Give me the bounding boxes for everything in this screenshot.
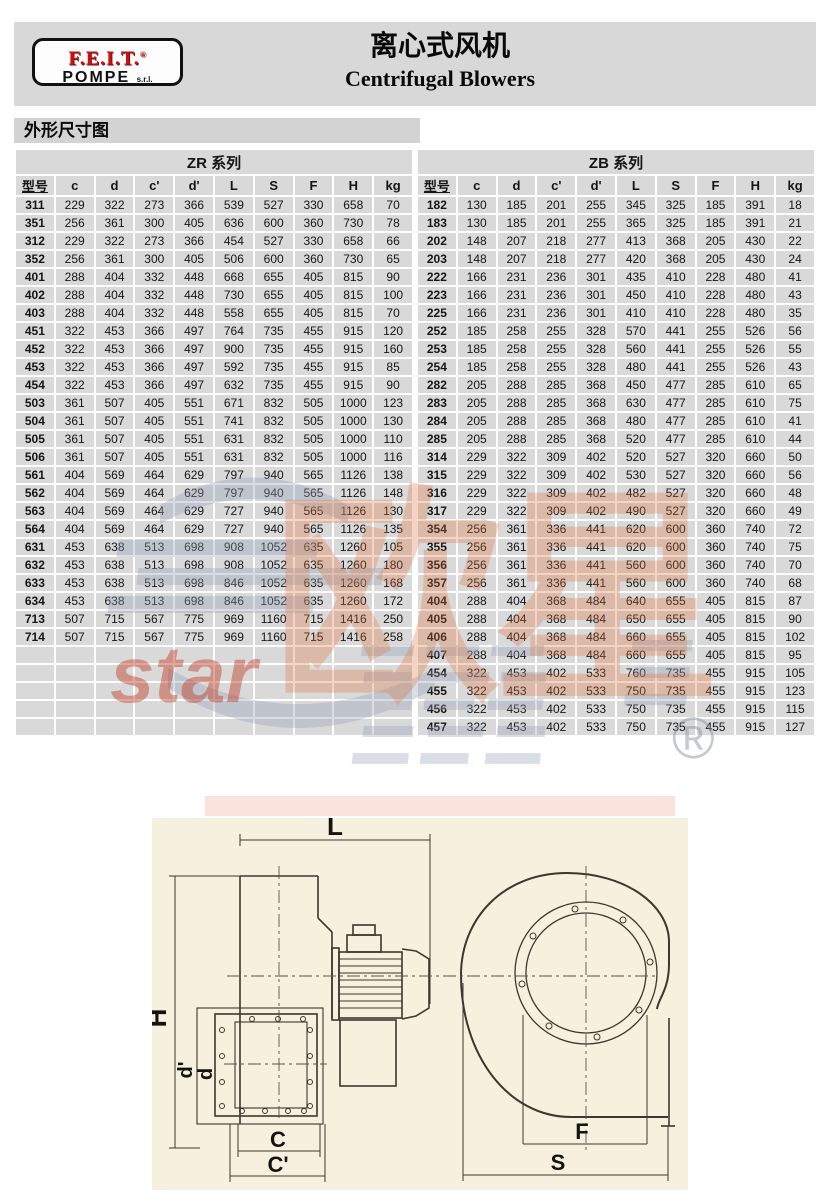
table-row: 5063615074055516318325051000116 <box>16 449 412 465</box>
value-cell: 1052 <box>255 557 293 573</box>
value-cell <box>374 683 412 699</box>
table-row: 31122932227336653952733065870 <box>16 197 412 213</box>
value-cell: 102 <box>776 629 814 645</box>
value-cell <box>96 683 134 699</box>
value-cell: 368 <box>577 377 615 393</box>
value-cell: 533 <box>577 665 615 681</box>
table-row: 35425636133644162060036074072 <box>418 521 814 537</box>
value-cell: 402 <box>577 503 615 519</box>
value-cell: 49 <box>776 503 814 519</box>
value-cell: 1260 <box>334 539 372 555</box>
model-cell: 283 <box>418 395 456 411</box>
model-cell: 506 <box>16 449 54 465</box>
value-cell: 527 <box>657 449 695 465</box>
column-header-d': d' <box>175 176 213 195</box>
value-cell: 480 <box>736 305 774 321</box>
value-cell: 815 <box>736 611 774 627</box>
value-cell: 404 <box>56 503 94 519</box>
value-cell <box>175 719 213 735</box>
value-cell <box>255 701 293 717</box>
value-cell: 655 <box>255 269 293 285</box>
value-cell: 273 <box>135 197 173 213</box>
value-cell: 660 <box>617 629 655 645</box>
logo-feit-word: F.E.I.T. <box>68 48 139 70</box>
value-cell: 632 <box>215 377 253 393</box>
value-cell: 600 <box>255 215 293 231</box>
value-cell: 256 <box>458 557 496 573</box>
model-cell: 284 <box>418 413 456 429</box>
value-cell: 402 <box>577 449 615 465</box>
value-cell: 405 <box>295 287 333 303</box>
value-cell: 533 <box>577 701 615 717</box>
value-cell: 638 <box>96 539 134 555</box>
value-cell: 567 <box>135 611 173 627</box>
model-cell: 405 <box>418 611 456 627</box>
value-cell: 322 <box>56 323 94 339</box>
value-cell: 448 <box>175 305 213 321</box>
value-cell: 368 <box>657 251 695 267</box>
value-cell: 285 <box>697 377 735 393</box>
value-cell: 638 <box>96 557 134 573</box>
value-cell: 846 <box>215 593 253 609</box>
value-cell: 325 <box>657 215 695 231</box>
value-cell: 655 <box>657 647 695 663</box>
model-cell: 285 <box>418 431 456 447</box>
value-cell: 250 <box>374 611 412 627</box>
column-header-kg: kg <box>776 176 814 195</box>
value-cell: 322 <box>498 485 536 501</box>
value-cell: 166 <box>458 305 496 321</box>
value-cell: 50 <box>776 449 814 465</box>
value-cell: 231 <box>498 269 536 285</box>
model-cell: 317 <box>418 503 456 519</box>
model-cell: 562 <box>16 485 54 501</box>
value-cell: 455 <box>295 341 333 357</box>
table-row: 40128840433244866865540581590 <box>16 269 412 285</box>
column-header-型号: 型号 <box>418 176 456 195</box>
value-cell: 915 <box>736 683 774 699</box>
value-cell: 345 <box>617 197 655 213</box>
value-cell: 655 <box>255 305 293 321</box>
value-cell: 915 <box>736 719 774 735</box>
value-cell: 497 <box>175 359 213 375</box>
value-cell: 185 <box>458 323 496 339</box>
value-cell: 229 <box>458 485 496 501</box>
value-cell: 715 <box>96 629 134 645</box>
table-row <box>16 701 412 717</box>
column-header-c: c <box>458 176 496 195</box>
value-cell: 258 <box>498 323 536 339</box>
model-cell: 357 <box>418 575 456 591</box>
value-cell: 56 <box>776 323 814 339</box>
value-cell: 740 <box>736 539 774 555</box>
value-cell <box>56 683 94 699</box>
value-cell: 75 <box>776 395 814 411</box>
value-cell: 205 <box>697 233 735 249</box>
value-cell: 1126 <box>334 503 372 519</box>
value-cell: 797 <box>215 467 253 483</box>
value-cell: 455 <box>697 665 735 681</box>
value-cell: 715 <box>295 611 333 627</box>
blower-side-view <box>197 876 429 1124</box>
value-cell: 1416 <box>334 611 372 627</box>
value-cell <box>96 647 134 663</box>
value-cell: 635 <box>295 575 333 591</box>
value-cell: 464 <box>135 467 173 483</box>
value-cell: 309 <box>537 449 575 465</box>
value-cell: 600 <box>255 251 293 267</box>
logo-pompe-word: POMPE <box>62 69 130 86</box>
value-cell: 288 <box>458 629 496 645</box>
column-header-L: L <box>215 176 253 195</box>
model-cell: 564 <box>16 521 54 537</box>
table-row: 455322453402533750735455915123 <box>418 683 814 699</box>
value-cell: 505 <box>295 395 333 411</box>
value-cell <box>96 701 134 717</box>
value-cell: 41 <box>776 413 814 429</box>
column-header-型号: 型号 <box>16 176 54 195</box>
value-cell: 255 <box>537 323 575 339</box>
value-cell <box>255 647 293 663</box>
value-cell: 655 <box>657 611 695 627</box>
model-cell: 252 <box>418 323 456 339</box>
value-cell: 288 <box>458 611 496 627</box>
value-cell: 527 <box>657 503 695 519</box>
value-cell <box>374 647 412 663</box>
table-row: 35625636133644156060036074070 <box>418 557 814 573</box>
value-cell: 368 <box>657 233 695 249</box>
value-cell: 320 <box>697 503 735 519</box>
model-cell: 282 <box>418 377 456 393</box>
column-header-F: F <box>697 176 735 195</box>
value-cell: 332 <box>135 305 173 321</box>
model-cell: 406 <box>418 629 456 645</box>
value-cell: 130 <box>374 413 412 429</box>
value-cell: 900 <box>215 341 253 357</box>
value-cell: 832 <box>255 413 293 429</box>
value-cell: 638 <box>96 593 134 609</box>
value-cell: 630 <box>617 395 655 411</box>
value-cell: 507 <box>96 431 134 447</box>
table-row: 28520528828536852047728561044 <box>418 431 814 447</box>
value-cell: 255 <box>537 359 575 375</box>
model-cell: 457 <box>418 719 456 735</box>
value-cell <box>255 665 293 681</box>
model-cell: 455 <box>418 683 456 699</box>
value-cell: 256 <box>458 521 496 537</box>
table-row: 40428840436848464065540581587 <box>418 593 814 609</box>
value-cell: 72 <box>776 521 814 537</box>
value-cell: 513 <box>135 575 173 591</box>
value-cell: 484 <box>577 611 615 627</box>
value-cell: 288 <box>458 593 496 609</box>
table-row: 31422932230940252052732066050 <box>418 449 814 465</box>
table-row: 45432245336649763273545591590 <box>16 377 412 393</box>
column-header-c': c' <box>537 176 575 195</box>
value-cell: 309 <box>537 467 575 483</box>
value-cell: 301 <box>577 287 615 303</box>
value-cell: 255 <box>697 359 735 375</box>
value-cell: 138 <box>374 467 412 483</box>
table-row <box>16 665 412 681</box>
value-cell: 309 <box>537 503 575 519</box>
value-cell: 477 <box>657 395 695 411</box>
value-cell: 70 <box>374 305 412 321</box>
value-cell: 640 <box>617 593 655 609</box>
value-cell <box>255 683 293 699</box>
value-cell: 533 <box>577 719 615 735</box>
value-cell: 127 <box>776 719 814 735</box>
value-cell: 322 <box>458 719 496 735</box>
value-cell: 288 <box>498 431 536 447</box>
value-cell: 600 <box>657 575 695 591</box>
model-cell: 401 <box>16 269 54 285</box>
value-cell: 273 <box>135 233 173 249</box>
value-cell: 405 <box>175 215 213 231</box>
value-cell: 760 <box>617 665 655 681</box>
value-cell: 464 <box>135 503 173 519</box>
model-cell: 407 <box>418 647 456 663</box>
value-cell: 336 <box>537 539 575 555</box>
table-row: 28320528828536863047728561075 <box>418 395 814 411</box>
label-H: H <box>152 1009 172 1028</box>
table-row: 35125636130040563660036073078 <box>16 215 412 231</box>
model-cell: 402 <box>16 287 54 303</box>
value-cell: 730 <box>215 287 253 303</box>
value-cell: 285 <box>537 431 575 447</box>
model-cell: 504 <box>16 413 54 429</box>
value-cell: 322 <box>56 377 94 393</box>
value-cell: 110 <box>374 431 412 447</box>
value-cell: 629 <box>175 467 213 483</box>
value-cell: 533 <box>577 683 615 699</box>
value-cell: 441 <box>577 557 615 573</box>
value-cell: 441 <box>577 539 615 555</box>
table-row: 71350771556777596911607151416250 <box>16 611 412 627</box>
value-cell: 477 <box>657 377 695 393</box>
value-cell: 288 <box>498 395 536 411</box>
value-cell: 513 <box>135 593 173 609</box>
model-cell: 451 <box>16 323 54 339</box>
value-cell: 229 <box>56 197 94 213</box>
value-cell: 551 <box>175 449 213 465</box>
motor-terminal-box <box>347 935 381 952</box>
table-row: 31622932230940248252732066048 <box>418 485 814 501</box>
value-cell: 464 <box>135 521 173 537</box>
value-cell: 915 <box>736 665 774 681</box>
label-d: d <box>195 1068 217 1080</box>
value-cell <box>334 647 372 663</box>
value-cell <box>295 701 333 717</box>
column-header-H: H <box>736 176 774 195</box>
value-cell: 205 <box>697 251 735 267</box>
table-row: 35525636133644162060036074075 <box>418 539 814 555</box>
value-cell: 740 <box>736 521 774 537</box>
value-cell: 368 <box>537 611 575 627</box>
value-cell: 620 <box>617 539 655 555</box>
value-cell: 526 <box>736 359 774 375</box>
inlet-flange-outer <box>197 1008 323 1124</box>
value-cell: 115 <box>776 701 814 717</box>
value-cell: 410 <box>657 305 695 321</box>
value-cell: 288 <box>56 269 94 285</box>
label-C-prime: C' <box>267 1152 288 1177</box>
value-cell: 65 <box>374 251 412 267</box>
table-row <box>16 683 412 699</box>
value-cell: 322 <box>96 197 134 213</box>
value-cell <box>175 665 213 681</box>
value-cell: 56 <box>776 467 814 483</box>
value-cell <box>215 683 253 699</box>
value-cell: 520 <box>617 431 655 447</box>
model-cell: 351 <box>16 215 54 231</box>
value-cell: 391 <box>736 197 774 213</box>
value-cell: 526 <box>736 323 774 339</box>
value-cell: 497 <box>175 341 213 357</box>
value-cell: 322 <box>96 233 134 249</box>
table-row: 35225636130040550660036073065 <box>16 251 412 267</box>
value-cell: 43 <box>776 287 814 303</box>
table-row: 454322453402533760735455915105 <box>418 665 814 681</box>
column-header-F: F <box>295 176 333 195</box>
label-C: C <box>270 1127 286 1152</box>
value-cell: 185 <box>458 359 496 375</box>
table-row <box>16 647 412 663</box>
table-row: 5033615074055516718325051000123 <box>16 395 412 411</box>
value-cell: 207 <box>498 251 536 267</box>
value-cell: 285 <box>697 431 735 447</box>
value-cell: 231 <box>498 305 536 321</box>
value-cell: 135 <box>374 521 412 537</box>
value-cell: 218 <box>537 251 575 267</box>
value-cell: 846 <box>215 575 253 591</box>
value-cell: 95 <box>776 647 814 663</box>
table-row: 31222932227336645452733065866 <box>16 233 412 249</box>
value-cell: 740 <box>736 557 774 573</box>
value-cell: 484 <box>577 629 615 645</box>
value-cell: 740 <box>736 575 774 591</box>
value-cell: 322 <box>458 683 496 699</box>
value-cell: 236 <box>537 287 575 303</box>
value-cell: 484 <box>577 593 615 609</box>
model-cell: 503 <box>16 395 54 411</box>
value-cell: 404 <box>56 467 94 483</box>
value-cell: 360 <box>697 539 735 555</box>
value-cell: 815 <box>334 287 372 303</box>
column-header-d: d <box>498 176 536 195</box>
value-cell: 368 <box>537 593 575 609</box>
model-cell: 453 <box>16 359 54 375</box>
value-cell: 453 <box>498 701 536 717</box>
value-cell: 1416 <box>334 629 372 645</box>
column-header-S: S <box>255 176 293 195</box>
value-cell: 453 <box>96 323 134 339</box>
value-cell: 255 <box>537 341 575 357</box>
value-cell: 256 <box>458 539 496 555</box>
value-cell <box>295 719 333 735</box>
model-cell: 314 <box>418 449 456 465</box>
value-cell: 66 <box>374 233 412 249</box>
value-cell: 660 <box>736 503 774 519</box>
value-cell: 105 <box>776 665 814 681</box>
table-row: 20314820721827742036820543024 <box>418 251 814 267</box>
model-cell <box>16 719 54 735</box>
table-row: 28420528828536848047728561041 <box>418 413 814 429</box>
value-cell: 1000 <box>334 431 372 447</box>
section-label-bar: 外形尺寸图 <box>14 118 420 143</box>
table-row: 25218525825532857044125552656 <box>418 323 814 339</box>
table-row: 40328840433244855865540581570 <box>16 305 412 321</box>
value-cell: 123 <box>776 683 814 699</box>
value-cell: 815 <box>736 629 774 645</box>
value-cell <box>56 719 94 735</box>
column-header-S: S <box>657 176 695 195</box>
model-cell: 223 <box>418 287 456 303</box>
value-cell: 361 <box>498 575 536 591</box>
value-cell: 90 <box>776 611 814 627</box>
value-cell: 1260 <box>334 557 372 573</box>
value-cell: 610 <box>736 395 774 411</box>
value-cell: 450 <box>617 287 655 303</box>
value-cell: 969 <box>215 611 253 627</box>
column-header-c: c <box>56 176 94 195</box>
value-cell: 1160 <box>255 611 293 627</box>
value-cell: 635 <box>295 539 333 555</box>
zb-series-title: ZB 系列 <box>418 150 814 174</box>
value-cell: 915 <box>334 341 372 357</box>
value-cell: 405 <box>697 647 735 663</box>
table-row: 71450771556777596911607151416258 <box>16 629 412 645</box>
value-cell: 361 <box>498 539 536 555</box>
value-cell: 658 <box>334 197 372 213</box>
page-title-chinese: 离心式风机 <box>180 28 700 64</box>
value-cell: 506 <box>215 251 253 267</box>
value-cell: 360 <box>295 251 333 267</box>
value-cell: 815 <box>334 269 372 285</box>
value-cell: 55 <box>776 341 814 357</box>
value-cell: 256 <box>56 251 94 267</box>
value-cell: 539 <box>215 197 253 213</box>
value-cell: 48 <box>776 485 814 501</box>
model-cell: 454 <box>16 377 54 393</box>
value-cell: 322 <box>458 665 496 681</box>
column-header-kg: kg <box>374 176 412 195</box>
value-cell: 435 <box>617 269 655 285</box>
value-cell: 797 <box>215 485 253 501</box>
value-cell: 477 <box>657 413 695 429</box>
value-cell: 527 <box>657 485 695 501</box>
value-cell: 402 <box>537 665 575 681</box>
value-cell: 277 <box>577 251 615 267</box>
table-row: 63145363851369890810526351260105 <box>16 539 412 555</box>
value-cell: 405 <box>295 269 333 285</box>
value-cell: 120 <box>374 323 412 339</box>
table-row: 25318525825532856044125552655 <box>418 341 814 357</box>
value-cell: 361 <box>498 557 536 573</box>
model-cell: 225 <box>418 305 456 321</box>
model-cell: 312 <box>16 233 54 249</box>
value-cell: 915 <box>334 323 372 339</box>
value-cell: 322 <box>498 503 536 519</box>
value-cell: 448 <box>175 269 213 285</box>
watermark-orange-strip <box>205 796 675 816</box>
value-cell: 530 <box>617 467 655 483</box>
value-cell: 405 <box>135 449 173 465</box>
value-cell: 404 <box>56 521 94 537</box>
table-row: 451322453366497764735455915120 <box>16 323 412 339</box>
model-cell: 631 <box>16 539 54 555</box>
value-cell: 285 <box>697 395 735 411</box>
